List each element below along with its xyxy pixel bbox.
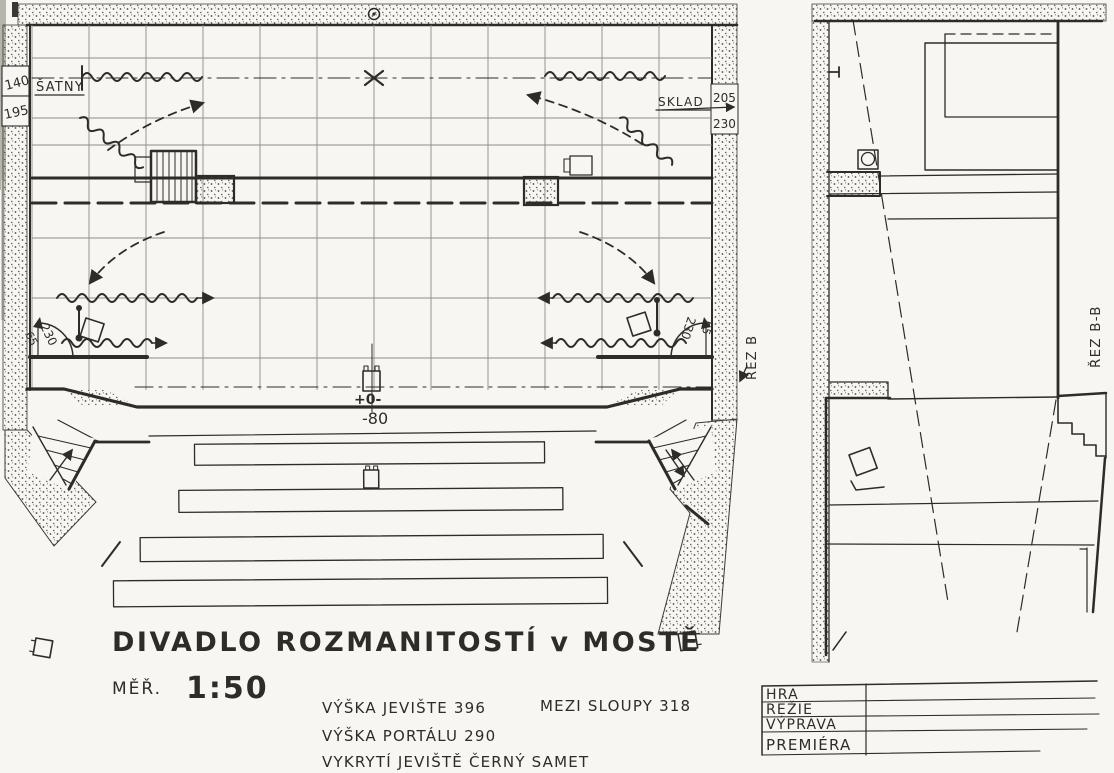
seating-rows [112,441,607,606]
info-table: HRA REŽIE VÝPRAVA PREMIÉRA [762,681,1099,755]
title-area: DIVADLO ROZMANITOSTÍ v MOSTĚ MĚŘ. 1:50 [112,626,701,706]
stage-walls [30,178,712,357]
control-desk-box [364,470,379,488]
dim-storage-lower: 230 [713,117,736,131]
dim-door-right-offset: 65 [699,319,716,336]
wall-anchor-tick [829,67,839,77]
note-between-columns: MEZI SLOUPY 318 [540,697,691,715]
dim-door-left-radius: 230 [37,321,60,348]
seat-row-1 [194,442,544,465]
dim-level-low: -80 [362,409,388,428]
section-view: ŘEZ B-B [812,4,1106,662]
section-walls [812,4,1106,662]
level-marker: +0- -80 [354,344,388,428]
dim-storage-upper: 205 [713,91,736,105]
theatre-plan-drawing: 230 65 230 65 +0- -80 [0,0,1114,773]
speaker-mid-right [627,312,651,336]
speaker-mid-left [80,318,104,342]
curtain-tracks [57,66,693,347]
scale-value: 1:50 [186,671,269,706]
sightline-1 [853,20,948,602]
note-masking: VYKRYTÍ JEVIŠTĚ ČERNÝ SAMET [322,752,589,771]
section-stairs [1058,393,1106,612]
table-row-vyprava: VÝPRAVA [766,716,837,733]
auditorium-floor-lines [827,501,1098,545]
drawing-title: DIVADLO ROZMANITOSTÍ v MOSTĚ [112,626,701,658]
speaker-section [849,447,877,475]
seat-row-4 [113,577,607,606]
centerline-marks [32,9,712,388]
label-section: ŘEZ B-B [1087,305,1104,368]
seat-row-3 [140,534,603,561]
label-storage: SKLAD [658,95,704,109]
dim-door-right-radius: 230 [678,315,698,341]
seat-row-2 [179,488,563,513]
note-portal-height: VÝŠKA PORTÁLU 290 [322,726,496,745]
notes-area: VÝŠKA JEVIŠTE 396 MEZI SLOUPY 318 VÝŠKA … [322,697,691,771]
scale-label: MĚŘ. [112,677,162,699]
sightline-2 [1016,400,1056,638]
drawing-sheet: 230 65 230 65 +0- -80 [0,0,1114,773]
speaker-bottom-left [29,637,53,657]
table-row-hra: HRA [766,687,799,703]
door-swing-right: 230 65 [671,315,716,358]
label-section-cut: ŘEZ B [744,335,760,380]
table-row-premiera: PREMIÉRA [766,735,851,754]
auditorium-wall-ticks [102,542,642,566]
plan-view: 230 65 230 65 +0- -80 [2,4,760,658]
table-row-rezie: REŽIE [766,700,813,718]
note-stage-height: VÝŠKA JEVIŠTE 396 [322,698,486,717]
dim-level-zero: +0- [354,392,381,408]
label-dressing-rooms: ŠATNY [36,79,84,95]
plan-labels: ŠATNY 140 195 SKLAD 205 230 ŘEZ B [3,73,760,381]
